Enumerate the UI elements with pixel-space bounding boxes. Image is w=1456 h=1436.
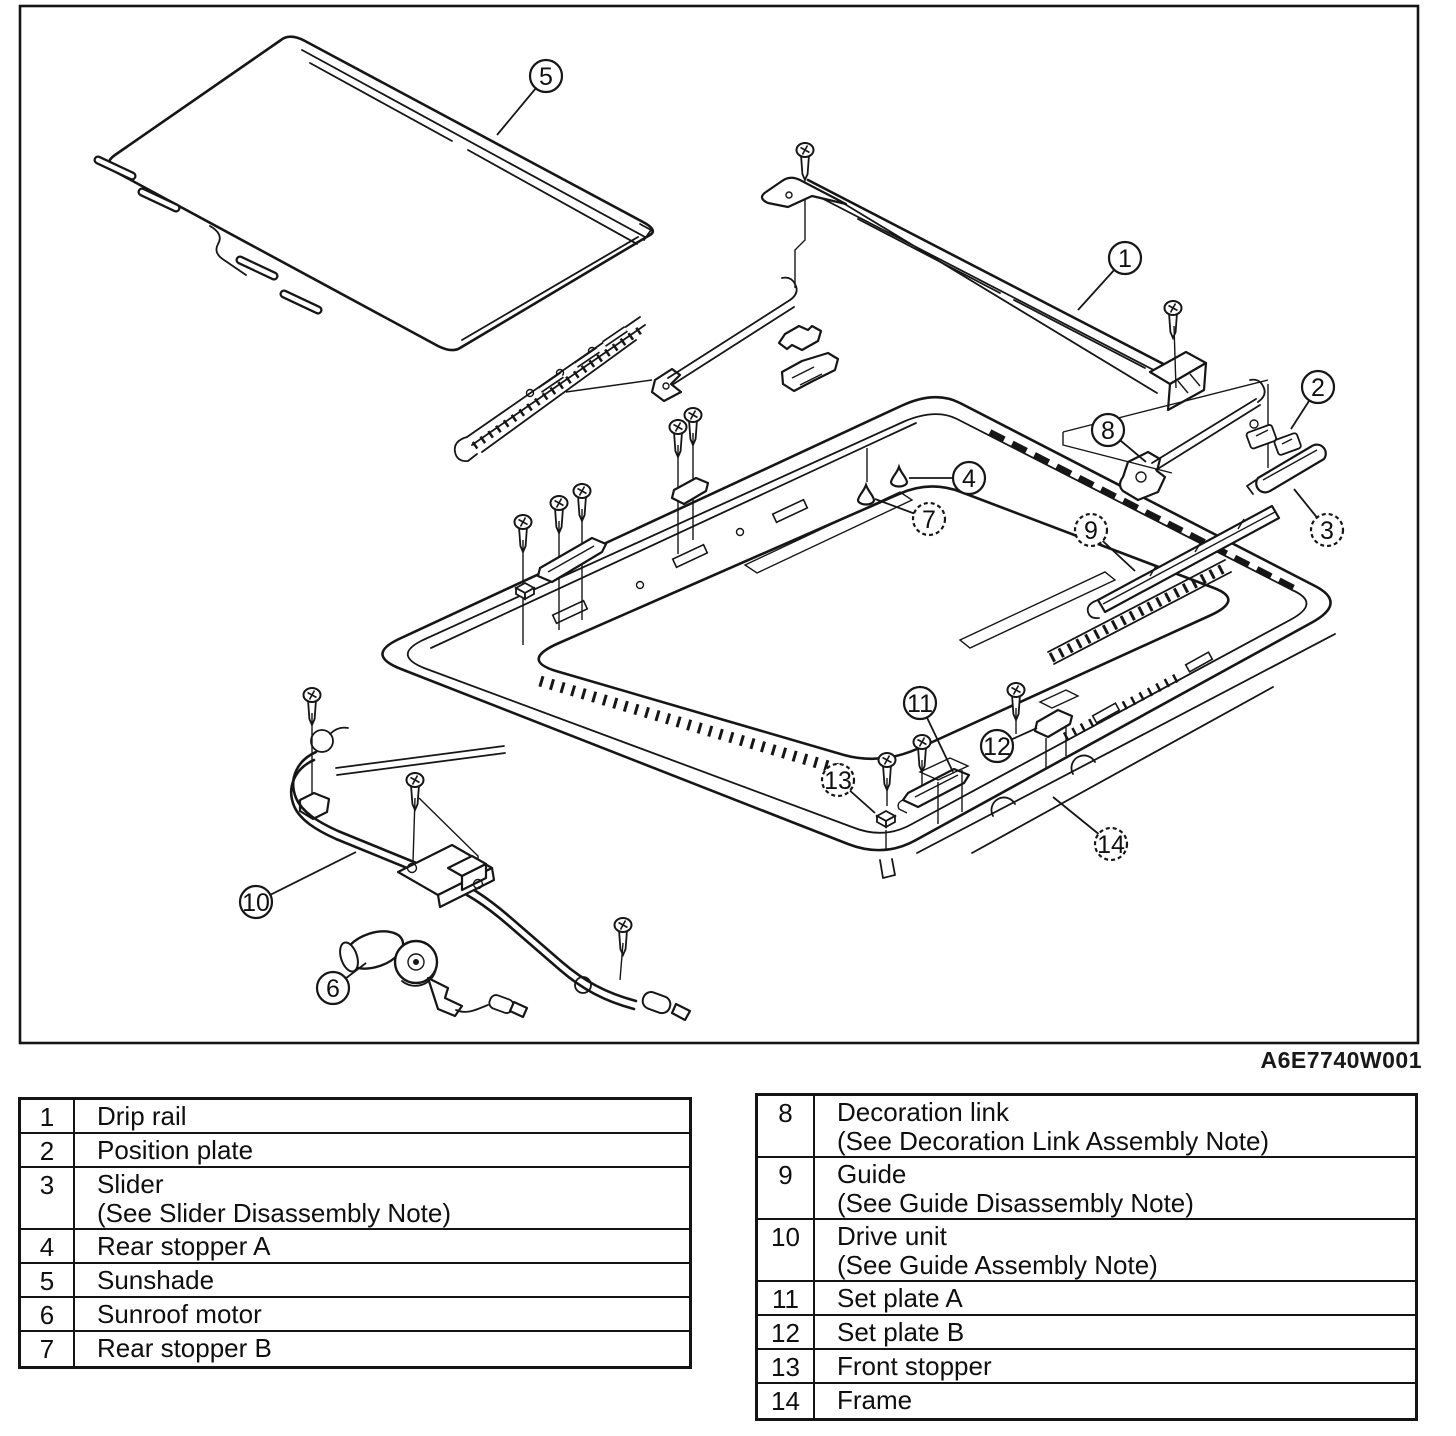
- callout-number: 4: [962, 465, 976, 493]
- callout-number: 5: [539, 63, 553, 91]
- parts-row: 4Rear stopper A: [21, 1230, 689, 1264]
- callout-number: 3: [1320, 517, 1334, 545]
- callout-number: 13: [824, 767, 852, 795]
- part-name: Frame: [815, 1384, 1415, 1418]
- screw-icon: [797, 143, 814, 180]
- callout-number: 1: [1118, 245, 1132, 273]
- callout-set-plate-a: 11: [904, 687, 953, 772]
- part-name: Set plate A: [815, 1282, 1415, 1314]
- part-name: Guide(See Guide Disassembly Note): [815, 1158, 1415, 1218]
- part-name: Position plate: [75, 1134, 689, 1166]
- part-number: 10: [758, 1220, 815, 1280]
- part-number: 3: [21, 1168, 75, 1228]
- callout-number: 7: [922, 506, 936, 534]
- callout-number: 14: [1097, 831, 1125, 859]
- callout-rear-stopper-b: 7: [875, 499, 945, 535]
- parts-row: 5Sunshade: [21, 1264, 689, 1298]
- part-number: 9: [758, 1158, 815, 1218]
- parts-table-right: 8Decoration link(See Decoration Link Ass…: [755, 1093, 1418, 1421]
- set-plate-a-part: [903, 769, 969, 807]
- part-number: 13: [758, 1350, 815, 1382]
- part-name: Rear stopper B: [75, 1332, 689, 1366]
- part-name: Drip rail: [75, 1100, 689, 1132]
- parts-row: 13Front stopper: [758, 1350, 1415, 1384]
- callout-number: 8: [1101, 417, 1115, 445]
- figure-ref-code: A6E7740W001: [1261, 1047, 1423, 1074]
- rear-stopper-a-part: [891, 467, 907, 487]
- part-number: 11: [758, 1282, 815, 1314]
- callout-set-plate-b: 12: [981, 728, 1037, 762]
- part-number: 2: [21, 1134, 75, 1166]
- part-name: Drive unit(See Guide Assembly Note): [815, 1220, 1415, 1280]
- part-number: 5: [21, 1264, 75, 1296]
- parts-row: 3Slider(See Slider Disassembly Note): [21, 1168, 689, 1230]
- part-number: 7: [21, 1332, 75, 1366]
- sunroof-motor: [337, 925, 527, 1017]
- parts-row: 9Guide(See Guide Disassembly Note): [758, 1158, 1415, 1220]
- parts-row: 1Drip rail: [21, 1100, 689, 1134]
- callout-slider: 3: [1294, 489, 1343, 546]
- left-fastener-group: [515, 408, 709, 645]
- part-name: Set plate B: [815, 1316, 1415, 1348]
- callout-number: 9: [1084, 517, 1098, 545]
- callout-position-plate: 2: [1291, 371, 1334, 429]
- parts-row: 2Position plate: [21, 1134, 689, 1168]
- part-name: Sunroof motor: [75, 1298, 689, 1330]
- parts-row: 7Rear stopper B: [21, 1332, 689, 1366]
- manual-page: 1234567891011121314 A6E7740W001 1Drip ra…: [0, 0, 1456, 1436]
- parts-row: 11Set plate A: [758, 1282, 1415, 1316]
- part-name: Slider(See Slider Disassembly Note): [75, 1168, 689, 1228]
- part-name: Decoration link(See Decoration Link Asse…: [815, 1096, 1415, 1156]
- corner-bracket: [652, 369, 681, 401]
- parts-row: 10Drive unit(See Guide Assembly Note): [758, 1220, 1415, 1282]
- sunshade-slots: [98, 160, 318, 310]
- callout-number: 11: [907, 690, 933, 718]
- rear-stopper-b-part: [858, 485, 874, 505]
- callout-number: 2: [1311, 374, 1325, 402]
- parts-row: 6Sunroof motor: [21, 1298, 689, 1332]
- frame-slots: [553, 500, 1213, 723]
- rear-stoppers: [858, 448, 907, 505]
- figure-border: [20, 6, 1418, 1043]
- callout-guide: 9: [1075, 514, 1135, 571]
- part-number: 8: [758, 1096, 815, 1156]
- sunshade: [98, 37, 653, 350]
- parts-row: 12Set plate B: [758, 1316, 1415, 1350]
- callout-number: 12: [983, 733, 1011, 761]
- part-name: Rear stopper A: [75, 1230, 689, 1262]
- frame: [382, 397, 1335, 878]
- screw-icon: [1165, 301, 1182, 338]
- part-number: 14: [758, 1384, 815, 1418]
- callout-number: 6: [326, 975, 340, 1003]
- parts-row: 14Frame: [758, 1384, 1415, 1418]
- callout-sunshade: 5: [497, 60, 562, 135]
- part-number: 12: [758, 1316, 815, 1348]
- part-number: 1: [21, 1100, 75, 1132]
- callout-drip-rail: 1: [1078, 242, 1141, 310]
- part-name: Front stopper: [815, 1350, 1415, 1382]
- parts-table-left: 1Drip rail2Position plate3Slider(See Sli…: [18, 1097, 692, 1369]
- callout-frame: 14: [1053, 797, 1127, 860]
- callout-number: 10: [242, 889, 270, 917]
- part-name: Sunshade: [75, 1264, 689, 1296]
- callout-sunroof-motor: 6: [317, 963, 366, 1004]
- part-number: 6: [21, 1298, 75, 1330]
- front-stopper-part: [877, 811, 895, 827]
- parts-row: 8Decoration link(See Decoration Link Ass…: [758, 1096, 1415, 1158]
- part-number: 4: [21, 1230, 75, 1262]
- drip-rail: [762, 178, 1206, 410]
- callout-front-stopper: 13: [822, 764, 875, 813]
- callout-drive-unit: 10: [240, 852, 356, 918]
